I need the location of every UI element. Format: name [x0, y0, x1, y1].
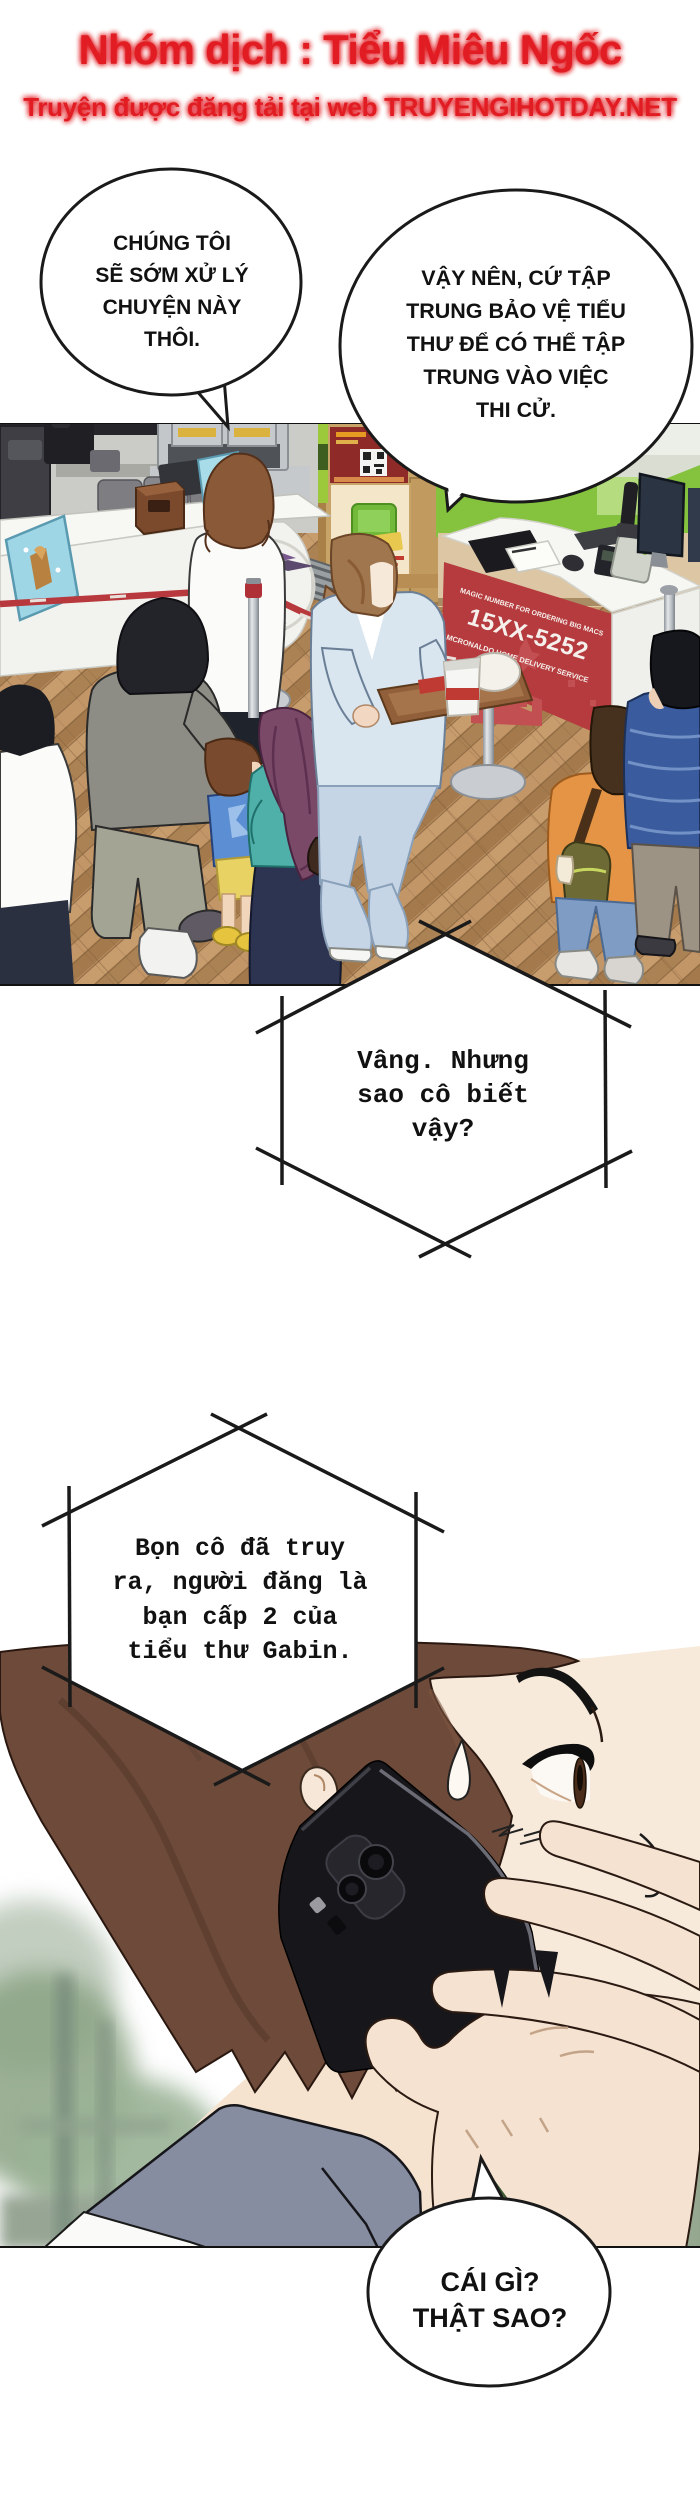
svg-text:Vâng. Nhưng: Vâng. Nhưng: [357, 1046, 529, 1076]
svg-text:THƯ ĐỂ CÓ THỂ TẬP: THƯ ĐỂ CÓ THỂ TẬP: [407, 331, 626, 356]
svg-text:tiểu thư Gabin.: tiểu thư Gabin.: [127, 1637, 352, 1666]
svg-text:SẼ SỚM XỬ LÝ: SẼ SỚM XỬ LÝ: [95, 263, 248, 287]
svg-text:THÔI.: THÔI.: [144, 327, 200, 351]
svg-text:Bọn cô đã truy: Bọn cô đã truy: [135, 1534, 345, 1563]
svg-text:ra, người đăng là: ra, người đăng là: [112, 1568, 367, 1597]
svg-text:VẬY NÊN, CỨ TẬP: VẬY NÊN, CỨ TẬP: [421, 265, 610, 290]
svg-text:CHUYỆN NÀY: CHUYỆN NÀY: [103, 295, 242, 319]
svg-text:TRUNG BẢO VỆ TIỂU: TRUNG BẢO VỆ TIỂU: [406, 298, 626, 323]
svg-text:THI CỬ.: THI CỬ.: [476, 397, 556, 422]
svg-text:CÁI GÌ?: CÁI GÌ?: [441, 2266, 540, 2297]
svg-text:vậy?: vậy?: [412, 1114, 474, 1144]
svg-text:sao cô biết: sao cô biết: [357, 1080, 529, 1110]
svg-text:Truyện được đăng tải tại web T: Truyện được đăng tải tại web TRUYENGIHOT…: [23, 92, 677, 122]
svg-text:TRUNG VÀO VIỆC: TRUNG VÀO VIỆC: [423, 364, 608, 389]
svg-text:CHÚNG TÔI: CHÚNG TÔI: [113, 231, 231, 255]
svg-text:Nhóm dịch : Tiểu Miêu Ngốc: Nhóm dịch : Tiểu Miêu Ngốc: [78, 26, 622, 73]
svg-text:bạn cấp 2 của: bạn cấp 2 của: [142, 1603, 337, 1632]
svg-text:THẬT SAO?: THẬT SAO?: [413, 2302, 568, 2333]
